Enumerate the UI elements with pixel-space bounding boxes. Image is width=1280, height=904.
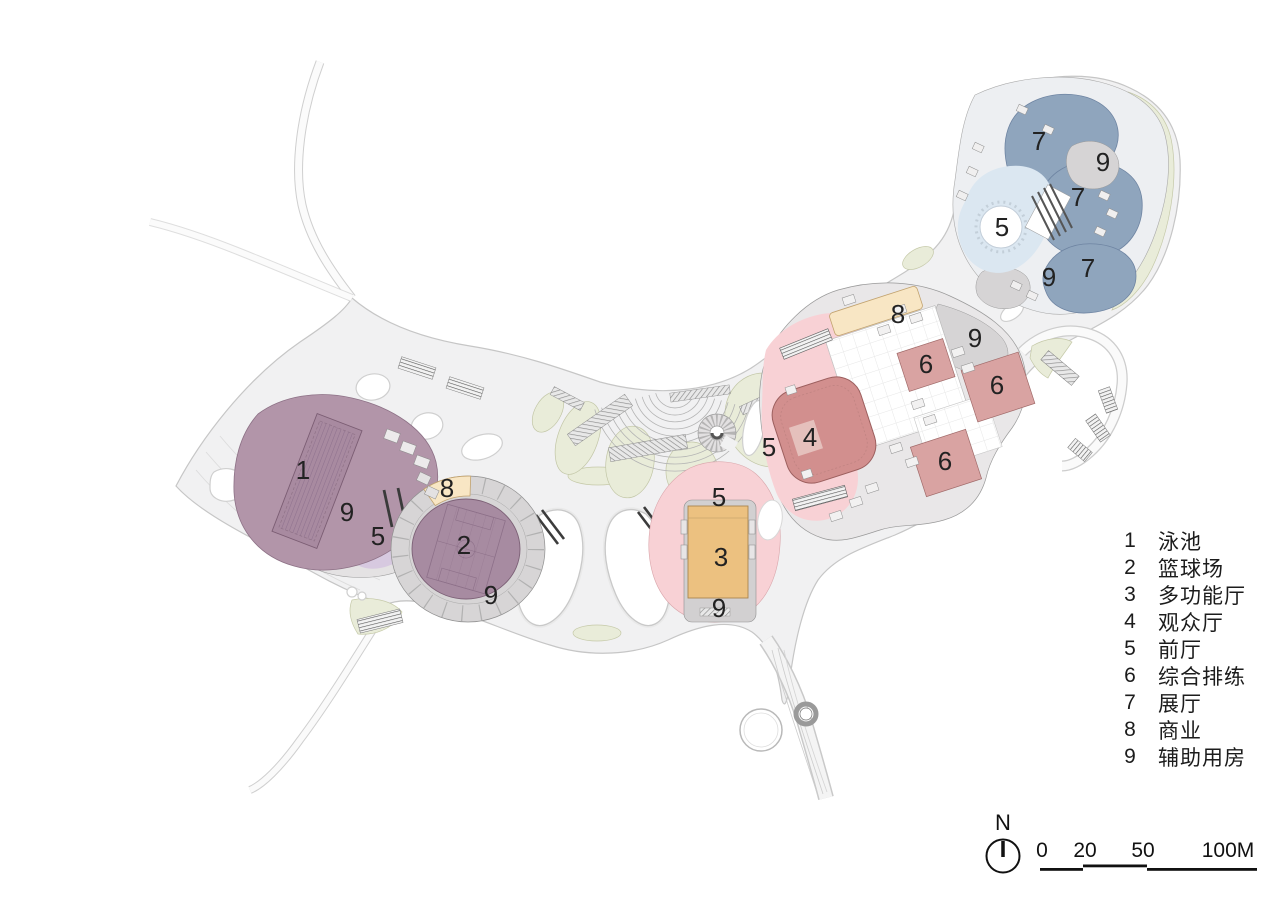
zone-marker-5: 5: [762, 432, 776, 462]
north-arrow: N: [987, 810, 1020, 873]
zone-marker-6: 6: [919, 349, 933, 379]
aux-9-shape: [976, 267, 1030, 309]
legend-num: 8: [1118, 718, 1142, 742]
legend-row-8: 8 商业: [1118, 716, 1246, 743]
legend-num: 1: [1118, 529, 1142, 553]
legend-num: 6: [1118, 664, 1142, 688]
legend-row-9: 9 辅助用房: [1118, 743, 1246, 770]
scale-bar-segment: [1083, 865, 1147, 868]
scale-bar-segment: [1040, 868, 1083, 871]
legend-num: 5: [1118, 637, 1142, 661]
legend-label: 观众厅: [1158, 607, 1224, 637]
zone-marker-9: 9: [712, 593, 726, 623]
legend-num: 4: [1118, 610, 1142, 634]
scale-bar-segment: [1147, 868, 1257, 871]
legend-label: 前厅: [1158, 634, 1202, 664]
zone-marker-7: 7: [1032, 126, 1046, 156]
legend-label: 展厅: [1158, 688, 1202, 718]
zone-marker-4: 4: [803, 422, 817, 452]
zone-marker-8: 8: [891, 299, 905, 329]
zone-marker-9: 9: [1096, 147, 1110, 177]
zone-marker-7: 7: [1071, 182, 1085, 212]
legend-label: 辅助用房: [1158, 742, 1246, 772]
legend-row-7: 7 展厅: [1118, 689, 1246, 716]
scale-tick-100: 100M: [1202, 839, 1255, 862]
zone-marker-5: 5: [371, 521, 385, 551]
zone-marker-5: 5: [995, 212, 1009, 242]
legend-row-4: 4 观众厅: [1118, 608, 1246, 635]
legend-num: 7: [1118, 691, 1142, 715]
zone-marker-7: 7: [1081, 253, 1095, 283]
zone-marker-2: 2: [457, 530, 471, 560]
legend-label: 篮球场: [1158, 553, 1224, 583]
zone-marker-9: 9: [340, 497, 354, 527]
zone-marker-1: 1: [296, 455, 310, 485]
legend-row-1: 1 泳池: [1118, 527, 1246, 554]
scale-tick-50: 50: [1131, 839, 1154, 862]
scale-bar: 0 20 50 100M: [1036, 839, 1257, 871]
legend-num: 2: [1118, 556, 1142, 580]
scale-tick-20: 20: [1073, 839, 1096, 862]
legend-row-3: 3 多功能厅: [1118, 581, 1246, 608]
legend-row-2: 2 篮球场: [1118, 554, 1246, 581]
ramp-tail: [740, 640, 827, 798]
legend-row-5: 5 前厅: [1118, 635, 1246, 662]
zone-marker-3: 3: [714, 542, 728, 572]
legend: 1 泳池 2 篮球场 3 多功能厅 4 观众厅 5 前厅 6 综合排练 7 展厅…: [1118, 527, 1246, 770]
legend-label: 多功能厅: [1158, 580, 1246, 610]
zone-marker-9: 9: [968, 323, 982, 353]
site-plan-canvas: 1 9 5 8 2 9 5 3 9 5 4 8 9 6 6 6 7 9 7 5 …: [0, 0, 1280, 904]
north-label: N: [995, 810, 1011, 835]
zone-marker-8: 8: [440, 473, 454, 503]
zone-marker-9: 9: [484, 580, 498, 610]
zone-exhibition-cluster: [953, 77, 1169, 314]
zone-marker-9: 9: [1042, 262, 1056, 292]
legend-label: 泳池: [1158, 526, 1202, 556]
legend-row-6: 6 综合排练: [1118, 662, 1246, 689]
scale-tick-0: 0: [1036, 839, 1048, 862]
legend-label: 综合排练: [1158, 661, 1246, 691]
legend-num: 9: [1118, 745, 1142, 769]
loop-ramp-large: [740, 709, 782, 751]
zone-marker-6: 6: [990, 370, 1004, 400]
legend-num: 3: [1118, 583, 1142, 607]
legend-label: 商业: [1158, 715, 1202, 745]
zone-marker-6: 6: [938, 446, 952, 476]
zone-marker-5: 5: [712, 482, 726, 512]
